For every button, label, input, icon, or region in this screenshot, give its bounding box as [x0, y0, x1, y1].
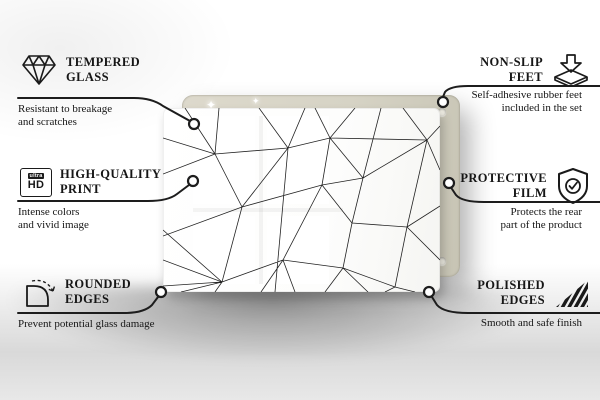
feature-title: PROTECTIVE: [460, 171, 547, 186]
feature-title: HIGH-QUALITY: [60, 167, 161, 182]
feature-polished-edges: POLISHED EDGES: [477, 277, 591, 309]
feature-description: Smooth and safe finish: [481, 317, 582, 330]
geometric-pattern: [163, 108, 440, 292]
feature-title: TEMPERED: [66, 55, 140, 70]
feature-title: POLISHED: [477, 278, 545, 293]
feature-protective-film: PROTECTIVE FILM: [460, 167, 591, 205]
feature-title: GLASS: [66, 70, 140, 85]
product-infographic: ✦ ✦ TEMPERED GLASS: [0, 0, 600, 400]
feature-title: EDGES: [477, 293, 545, 308]
feature-title: FILM: [460, 186, 547, 201]
feature-title: PRINT: [60, 182, 161, 197]
glass-board: [163, 108, 440, 292]
ultra-hd-icon: ultra HD: [20, 168, 52, 197]
feature-rounded-edges: ROUNDED EDGES: [21, 276, 131, 308]
feature-description: Self-adhesive rubber feet included in th…: [471, 89, 582, 115]
feature-description: Prevent potential glass damage: [18, 318, 155, 331]
feature-title: EDGES: [65, 292, 131, 307]
shield-check-icon: [555, 167, 591, 205]
feature-title: ROUNDED: [65, 277, 131, 292]
feature-tempered-glass: TEMPERED GLASS: [20, 53, 140, 87]
rounded-corner-icon: [21, 276, 57, 308]
feature-high-quality-print: ultra HD HIGH-QUALITY PRINT: [20, 167, 161, 197]
hatched-edge-icon: [553, 277, 591, 309]
non-slip-feet-icon: [551, 53, 591, 87]
feature-non-slip-feet: NON-SLIP FEET: [480, 53, 591, 87]
feature-description: Protects the rear part of the product: [500, 206, 582, 232]
feature-description: Resistant to breakage and scratches: [18, 103, 112, 129]
diamond-icon: [20, 53, 58, 87]
feature-title: FEET: [480, 70, 543, 85]
feature-description: Intense colors and vivid image: [18, 206, 89, 232]
feature-title: NON-SLIP: [480, 55, 543, 70]
